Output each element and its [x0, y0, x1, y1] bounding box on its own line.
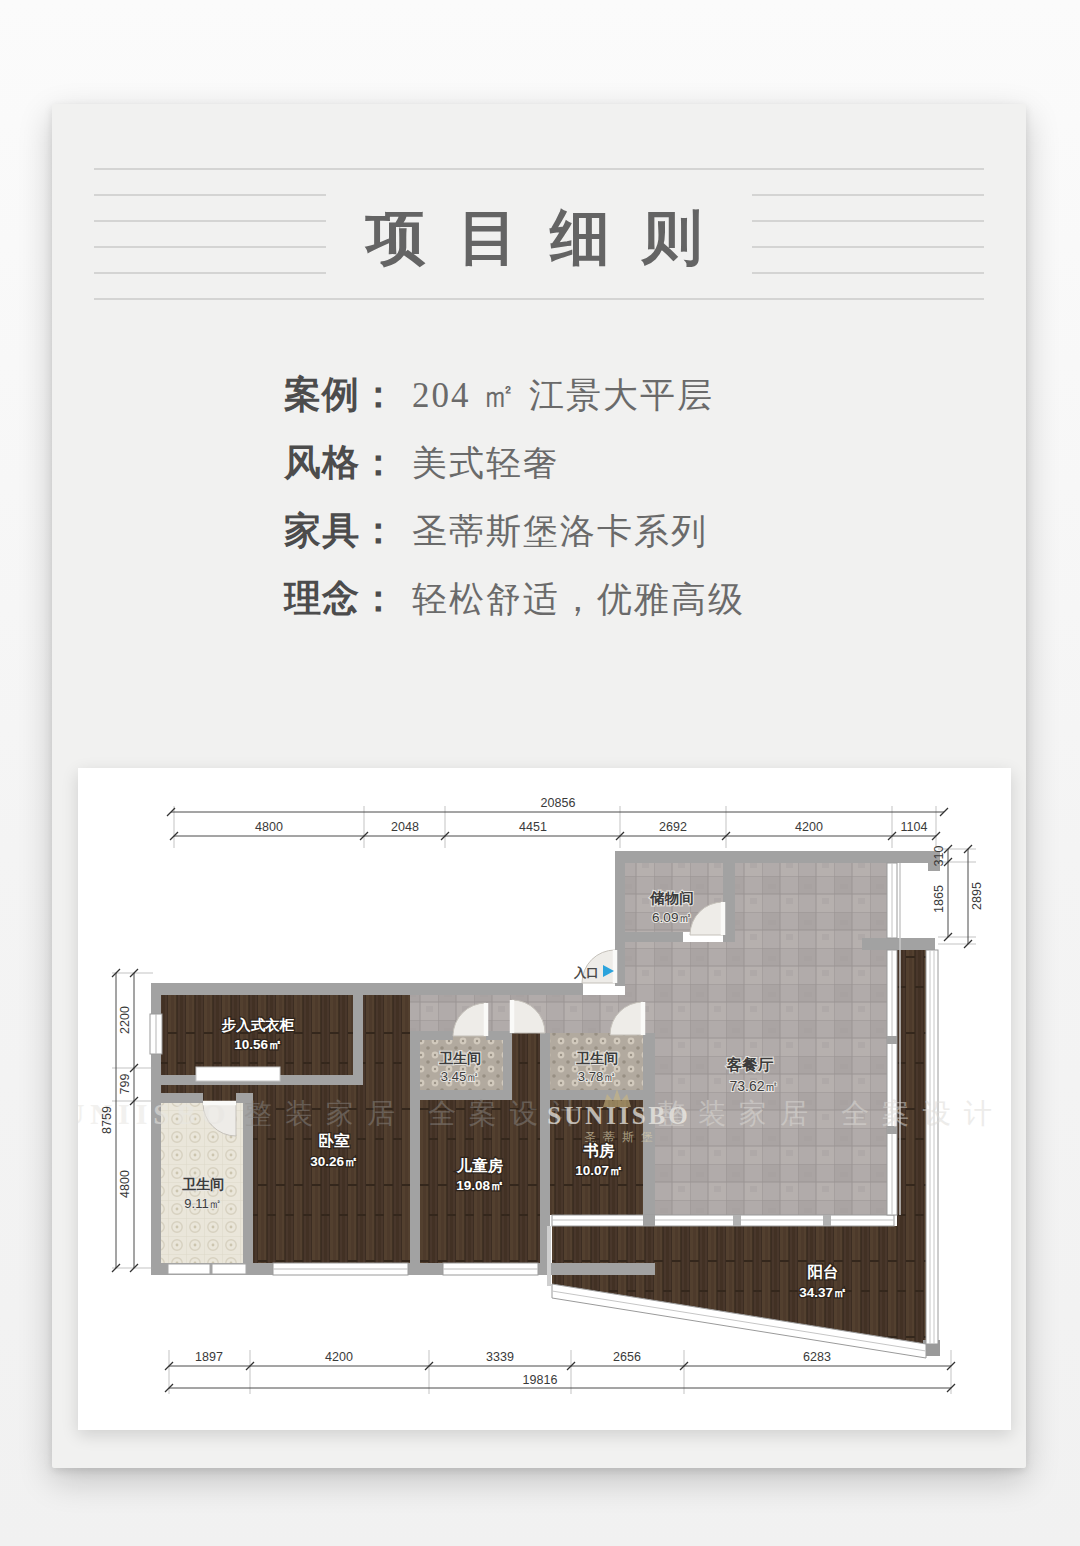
wall: [615, 851, 940, 863]
balcony-arm-floor: [897, 950, 926, 1226]
info-label: 风格：: [284, 438, 412, 488]
dim-right-total: 2895: [970, 882, 984, 910]
wall: [862, 938, 935, 950]
dim-left-total: 8759: [100, 1106, 114, 1134]
room-area-bath-b: 3.78㎡: [578, 1069, 616, 1084]
room-area-living: 73.62㎡: [729, 1078, 778, 1094]
floorplan-drawing: SUNIISBO 整装家居 全案设计 SUNIISBO 圣蒂斯堡 整装家居 全案…: [78, 768, 1011, 1430]
watermark-slogan-left: 整装家居 全案设计: [244, 1098, 592, 1129]
room-area-bath-a: 3.45㎡: [441, 1069, 479, 1084]
dim-left-1: 2200: [118, 1006, 132, 1034]
info-value: 美式轻奢: [412, 440, 560, 487]
info-value: 轻松舒适，优雅高级: [412, 576, 745, 623]
wall: [410, 1033, 420, 1263]
poster-page: { "title": { "text": "项目细则" }, "info": {…: [0, 0, 1080, 1546]
dim-top-total: 20856: [541, 796, 576, 810]
room-area-balcony: 34.37㎡: [799, 1285, 846, 1300]
dim-bottom-3: 3339: [486, 1350, 514, 1364]
dim-bottom-2: 4200: [325, 1350, 353, 1364]
closet-cabinet: [196, 1067, 280, 1081]
floorplan-panel: SUNIISBO 整装家居 全案设计 SUNIISBO 圣蒂斯堡 整装家居 全案…: [78, 768, 1011, 1430]
bottom-windows: [168, 1263, 538, 1275]
room-label-living: 客餐厅: [726, 1056, 774, 1073]
dim-right-2: 1865: [932, 885, 946, 913]
dim-right-1: 310: [932, 846, 946, 867]
dim-bottom-4: 2656: [613, 1350, 641, 1364]
dim-bottom-total: 19816: [523, 1373, 558, 1387]
dim-top-5: 4200: [795, 820, 823, 834]
dim-left-3: 4800: [118, 1170, 132, 1198]
info-value: 204 ㎡ 江景大平层: [412, 372, 714, 419]
living-window-band: [552, 1215, 894, 1226]
info-label: 理念：: [284, 574, 412, 624]
kids-entry-floor: [512, 1031, 540, 1100]
balcony-rail-right: [926, 950, 938, 1344]
info-label: 家具：: [284, 506, 412, 556]
wall: [410, 1031, 453, 1040]
dim-top-6: 1104: [901, 820, 928, 834]
dim-top-4: 2692: [659, 820, 687, 834]
poster-card: 项目细则 案例： 204 ㎡ 江景大平层 风格： 美式轻奢 家具： 圣蒂斯堡洛卡…: [52, 104, 1026, 1468]
room-label-bath-b: 卫生间: [576, 1050, 618, 1066]
room-label-storage: 储物间: [649, 890, 694, 906]
wall: [625, 932, 683, 942]
dim-top-2: 2048: [391, 820, 419, 834]
wall: [353, 995, 363, 1075]
room-area-study: 10.07㎡: [575, 1163, 622, 1178]
info-row-case: 案例： 204 ㎡ 江景大平层: [284, 370, 745, 416]
room-area-closet: 10.56㎡: [234, 1037, 281, 1052]
dim-bottom-5: 6283: [803, 1350, 831, 1364]
dim-left-2: 799: [118, 1074, 132, 1095]
room-label-study: 书房: [583, 1142, 616, 1159]
watermark-slogan-right: 整装家居 全案设计: [657, 1098, 1005, 1129]
room-area-storage: 6.09㎡: [652, 910, 692, 925]
project-info: 案例： 204 ㎡ 江景大平层 风格： 美式轻奢 家具： 圣蒂斯堡洛卡系列 理念…: [284, 370, 745, 642]
room-label-bath-c: 卫生间: [182, 1176, 224, 1192]
dim-top-3: 4451: [519, 820, 547, 834]
wall: [503, 1031, 512, 1090]
room-label-kids: 儿童房: [456, 1157, 504, 1174]
room-label-balcony: 阳台: [808, 1263, 839, 1280]
dim-top-1: 4800: [255, 820, 283, 834]
room-label-bath-a: 卫生间: [439, 1050, 481, 1066]
dim-bottom-1: 1897: [195, 1350, 223, 1364]
info-label: 案例：: [284, 370, 412, 420]
info-value: 圣蒂斯堡洛卡系列: [412, 508, 708, 555]
room-area-bedroom: 30.26㎡: [310, 1154, 357, 1169]
left-window: [150, 1014, 162, 1054]
wall: [151, 983, 583, 995]
room-area-kids: 19.08㎡: [456, 1178, 503, 1193]
page-title: 项目细则: [326, 192, 752, 285]
bedroom-hall-floor: [363, 995, 410, 1085]
entrance-label: 入口: [573, 966, 599, 980]
info-row-style: 风格： 美式轻奢: [284, 438, 745, 484]
room-label-bedroom: 卧室: [319, 1132, 351, 1149]
closet-floor: [161, 995, 353, 1075]
info-row-concept: 理念： 轻松舒适，优雅高级: [284, 574, 745, 620]
title-block: 项目细则: [94, 168, 984, 308]
info-row-furniture: 家具： 圣蒂斯堡洛卡系列: [284, 506, 745, 552]
room-area-bath-c: 9.11㎡: [184, 1196, 221, 1211]
room-label-closet: 步入式衣柜: [221, 1017, 295, 1033]
